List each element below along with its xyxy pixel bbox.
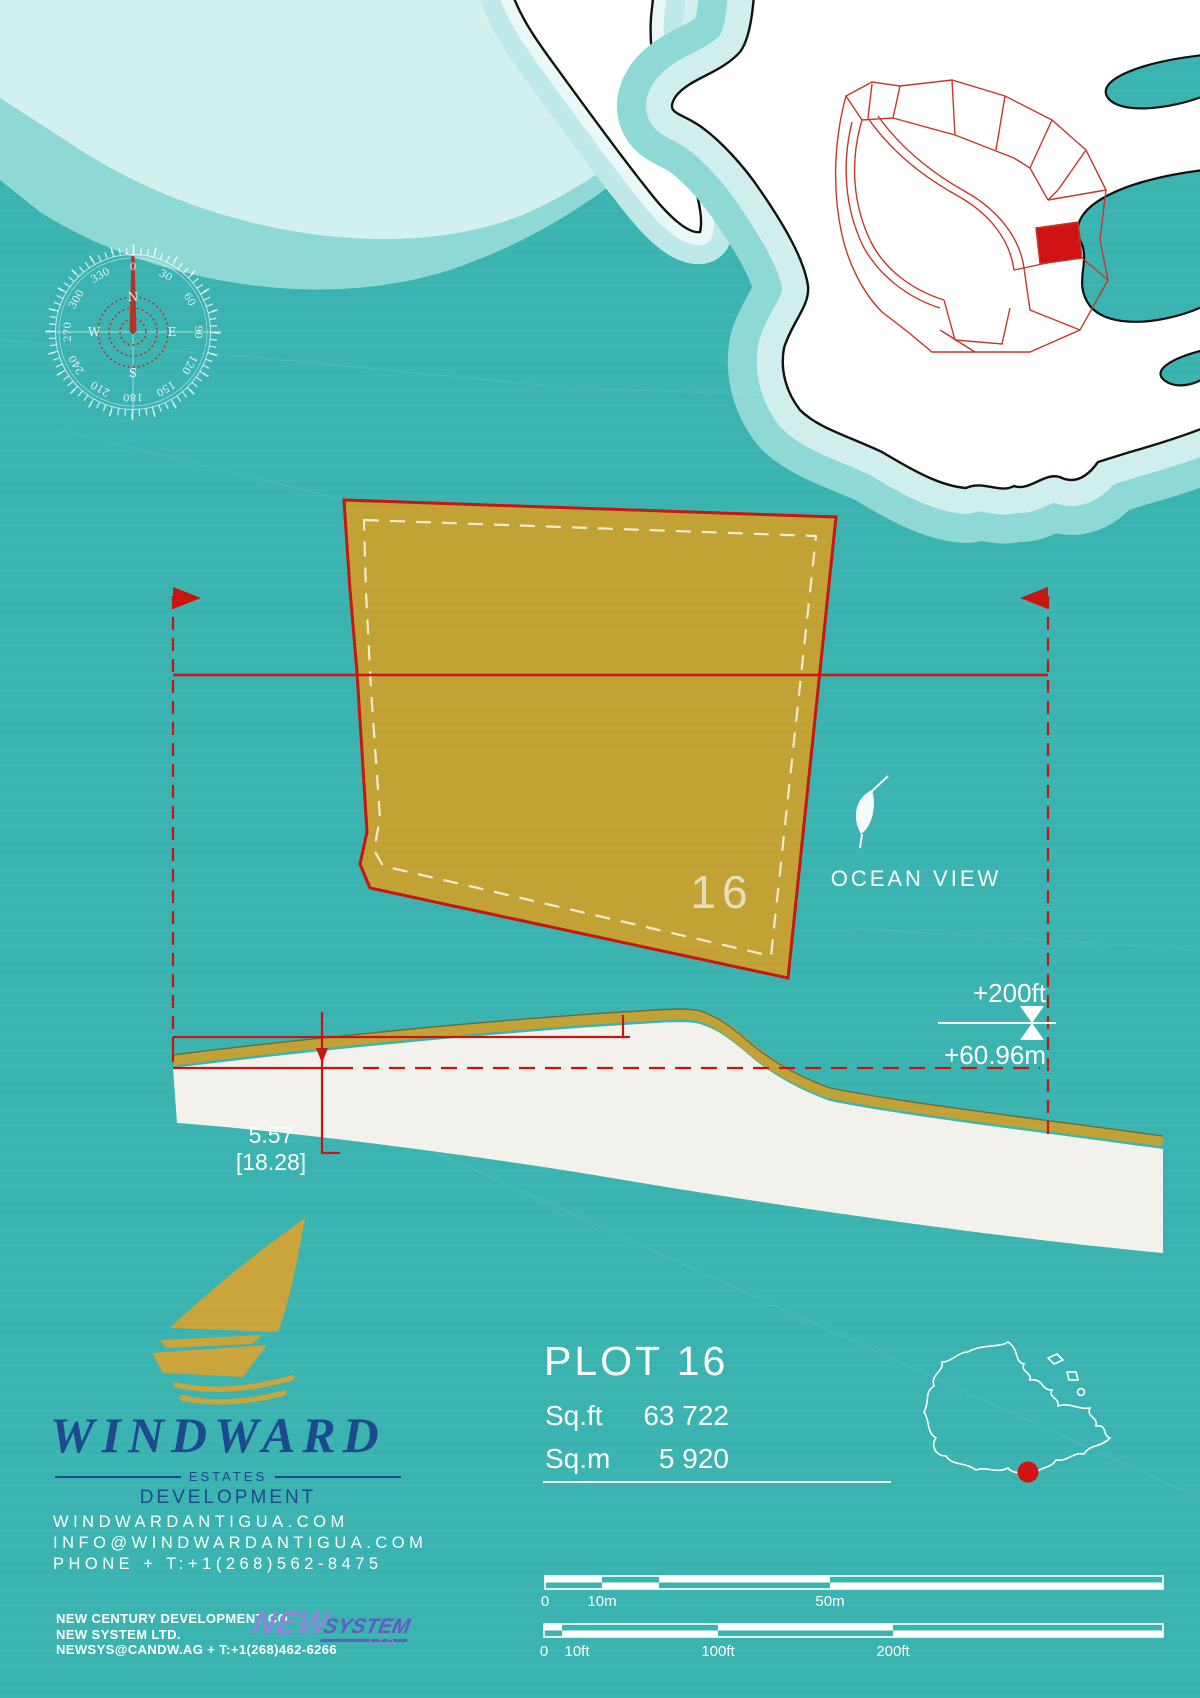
scale-meters-50: 50m [815,1593,844,1610]
brand-email: INFO@WINDWARDANTIGUA.COM [53,1533,427,1554]
sqm-value: 5 920 [659,1443,729,1475]
plot-number-label: 16 [690,866,753,918]
dimension-flag-left [173,587,201,609]
compass-degree-label: 30 [157,267,175,284]
scale-feet-100: 100ft [701,1643,734,1660]
scale-feet-10: 10ft [564,1643,589,1660]
compass-cardinal-w: W [88,325,101,339]
compass-degree-label: 240 [67,353,87,376]
compass-degree-label: 180 [123,391,143,403]
compass-degree-label: 210 [89,378,112,398]
scale-bar-meters [545,1576,1163,1589]
compass-degree-label: 120 [179,353,199,376]
ocean-view-icon [856,776,888,848]
compass-degree-label: 0 [130,261,137,273]
compass-degree-label: 270 [62,322,74,342]
brand-contacts: WINDWARDANTIGUA.COM INFO@WINDWARDANTIGUA… [53,1512,427,1575]
scale-feet-200: 200ft [876,1643,909,1660]
sqft-label: Sq.ft [545,1400,603,1432]
brand-website: WINDWARDANTIGUA.COM [53,1512,427,1533]
elevation-feet-label: +200ft [973,978,1046,1009]
peninsula [672,0,1200,489]
compass-cardinal-s: S [129,366,137,380]
new-system-logo: NEW SYSTEM LTD [249,1605,405,1642]
compass-cardinal-n: N [128,290,139,304]
compass-degree-label: 90 [192,325,204,338]
dimension-flag-right [1020,587,1048,609]
scale-meters-10: 10m [587,1593,616,1610]
new-system-logo-new: NEW [249,1605,332,1641]
elevation-benchmark [938,1006,1056,1040]
divider-line [55,1476,181,1478]
compass-degree-label: 150 [154,378,177,398]
sqft-value: 63 722 [643,1400,729,1432]
plot-location-dot [1018,1462,1039,1483]
section-dimension-bracket: [18.28] [206,1149,336,1176]
scale-bar-feet [544,1624,1163,1637]
brand-estates-row: ESTATES [55,1469,401,1484]
sailboat-logo [152,1218,305,1402]
antigua-locator-inset [924,1342,1110,1483]
plot-area-sqft-row: Sq.ft 63 722 [545,1400,729,1432]
compass-degree-label: 60 [181,291,198,309]
sqm-label: Sq.m [545,1443,610,1475]
brand-estates-label: ESTATES [189,1469,267,1484]
section-dimension: 5.57 [18.28] [206,1122,336,1176]
plot-map-poster: 0 30 60 90 120 150 180 210 240 270 300 3… [0,0,1200,1698]
benchmark-hourglass-icon [1020,1023,1044,1040]
ocean-view-label: OCEAN VIEW [816,866,1016,892]
brand-development-label: DEVELOPMENT [55,1487,401,1509]
divider-line [275,1476,401,1478]
brand-name: WINDWARD [50,1406,386,1464]
brand-phone: PHONE + T:+1(268)562-8475 [53,1554,427,1575]
compass-degree-label: 330 [89,266,112,286]
plot-16-boundary [344,500,836,978]
scale-feet-0: 0 [540,1643,548,1660]
plot-16-parcel: 16 [344,500,836,978]
plot-info-divider [543,1481,891,1483]
elevation-meters-label: +60.96m [944,1040,1046,1071]
scale-meters-0: 0 [541,1593,549,1610]
compass-degree-label: 300 [67,288,87,311]
compass-cardinal-e: E [168,325,177,339]
new-system-logo-system: SYSTEM [320,1615,412,1642]
plot-title: PLOT 16 [544,1338,728,1385]
new-system-logo-ltd: LTD [368,1637,399,1647]
plot-area-sqm-row: Sq.m 5 920 [545,1443,729,1475]
section-dimension-value: 5.57 [206,1122,336,1149]
highlighted-plot-16-inset [1036,222,1082,264]
developer-contact-line: NEWSYS@CANDW.AG + T:+1(268)462-6266 [56,1642,337,1658]
